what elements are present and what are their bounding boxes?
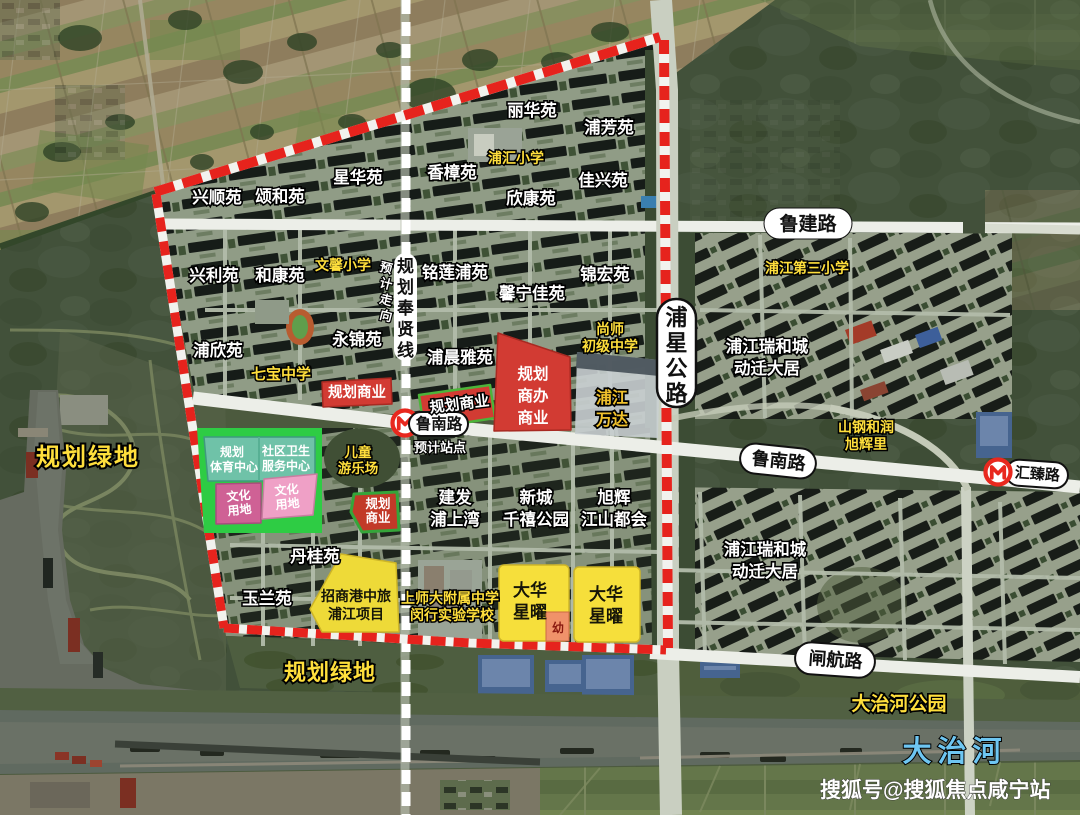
svg-text:星曜: 星曜 — [513, 603, 547, 622]
svg-text:丹桂苑: 丹桂苑 — [290, 546, 340, 566]
svg-text:文馨小学: 文馨小学 — [315, 257, 371, 273]
svg-text:尚师: 尚师 — [596, 321, 624, 337]
svg-text:规划: 规划 — [365, 496, 390, 511]
svg-text:大治河公园: 大治河公园 — [851, 692, 946, 715]
svg-text:香樟苑: 香樟苑 — [427, 162, 477, 182]
svg-text:佳兴苑: 佳兴苑 — [578, 170, 628, 190]
svg-text:动迁大居: 动迁大居 — [732, 561, 798, 581]
svg-text:和康苑: 和康苑 — [255, 265, 305, 285]
svg-text:七宝中学: 七宝中学 — [251, 365, 311, 383]
svg-text:浦晨雅苑: 浦晨雅苑 — [427, 347, 494, 367]
svg-text:馨宁佳苑: 馨宁佳苑 — [498, 283, 566, 303]
svg-text:路: 路 — [665, 381, 688, 406]
svg-text:闸航路: 闸航路 — [808, 647, 864, 672]
svg-text:规划绿地: 规划绿地 — [284, 660, 376, 685]
svg-text:江山都会: 江山都会 — [581, 509, 648, 529]
svg-text:浦芳苑: 浦芳苑 — [584, 117, 634, 137]
svg-text:线: 线 — [397, 340, 414, 360]
svg-text:万达: 万达 — [595, 410, 628, 429]
svg-text:旭辉里: 旭辉里 — [844, 436, 887, 452]
svg-text:颂和苑: 颂和苑 — [255, 186, 305, 206]
svg-text:浦江瑞和城: 浦江瑞和城 — [724, 539, 807, 559]
svg-text:动迁大居: 动迁大居 — [734, 358, 800, 378]
svg-text:兴顺苑: 兴顺苑 — [192, 187, 242, 207]
svg-text:新城: 新城 — [520, 487, 554, 507]
svg-text:玉兰苑: 玉兰苑 — [242, 588, 292, 608]
svg-text:浦汇小学: 浦汇小学 — [488, 150, 544, 166]
svg-text:规划商业: 规划商业 — [328, 383, 386, 401]
svg-text:浦江: 浦江 — [596, 388, 628, 407]
svg-text:社区卫生: 社区卫生 — [261, 443, 310, 458]
svg-text:丽华苑: 丽华苑 — [507, 100, 557, 120]
svg-text:大华: 大华 — [589, 584, 623, 604]
svg-text:用地: 用地 — [226, 501, 252, 519]
svg-text:规划: 规划 — [517, 364, 548, 383]
svg-text:浦上湾: 浦上湾 — [430, 509, 480, 529]
svg-text:浦江第三小学: 浦江第三小学 — [765, 260, 849, 276]
svg-text:贤: 贤 — [397, 320, 414, 339]
svg-text:星华苑: 星华苑 — [333, 167, 383, 187]
svg-text:大治河: 大治河 — [902, 735, 1007, 768]
svg-text:用地: 用地 — [274, 495, 300, 513]
svg-text:星: 星 — [665, 330, 687, 355]
svg-text:商办: 商办 — [517, 386, 549, 405]
svg-text:划: 划 — [397, 277, 414, 297]
svg-text:汇臻路: 汇臻路 — [1014, 463, 1061, 484]
svg-text:鲁南路: 鲁南路 — [416, 414, 463, 433]
svg-text:闵行实验学校: 闵行实验学校 — [410, 607, 495, 623]
svg-text:招商港中旅: 招商港中旅 — [321, 588, 391, 604]
svg-text:浦: 浦 — [665, 305, 687, 330]
svg-text:初级中学: 初级中学 — [582, 338, 638, 354]
svg-text:浦江项目: 浦江项目 — [328, 606, 384, 622]
svg-text:幼: 幼 — [552, 620, 564, 635]
svg-text:奉: 奉 — [396, 298, 415, 318]
svg-text:建发: 建发 — [439, 487, 473, 507]
svg-text:体育中心: 体育中心 — [210, 459, 258, 474]
svg-text:铭莲浦苑: 铭莲浦苑 — [422, 262, 489, 282]
svg-text:儿童: 儿童 — [344, 444, 372, 460]
svg-text:上师大附属中学: 上师大附属中学 — [401, 590, 499, 606]
svg-text:规: 规 — [397, 257, 414, 276]
svg-text:浦欣苑: 浦欣苑 — [193, 340, 243, 360]
svg-text:商业: 商业 — [517, 408, 548, 427]
svg-text:鲁建路: 鲁建路 — [778, 212, 837, 235]
svg-text:旭辉: 旭辉 — [597, 488, 632, 507]
svg-text:欣康苑: 欣康苑 — [506, 188, 556, 208]
svg-text:锦宏苑: 锦宏苑 — [580, 264, 630, 284]
svg-text:浦江瑞和城: 浦江瑞和城 — [726, 336, 809, 356]
svg-text:兴利苑: 兴利苑 — [189, 265, 239, 285]
svg-text:公: 公 — [665, 356, 687, 381]
svg-text:山钢和润: 山钢和润 — [838, 419, 894, 435]
svg-text:商业: 商业 — [365, 510, 391, 525]
svg-text:大华: 大华 — [513, 580, 547, 600]
svg-text:千禧公园: 千禧公园 — [503, 510, 569, 529]
svg-text:永锦苑: 永锦苑 — [331, 329, 382, 349]
svg-text:游乐场: 游乐场 — [338, 460, 379, 476]
svg-text:规划: 规划 — [220, 444, 244, 459]
svg-text:服务中心: 服务中心 — [262, 458, 310, 473]
svg-text:规划绿地: 规划绿地 — [36, 443, 140, 471]
svg-text:星曜: 星曜 — [589, 607, 623, 626]
svg-text:预计站点: 预计站点 — [414, 440, 466, 455]
svg-text:搜狐号@搜狐焦点咸宁站: 搜狐号@搜狐焦点咸宁站 — [820, 778, 1050, 802]
